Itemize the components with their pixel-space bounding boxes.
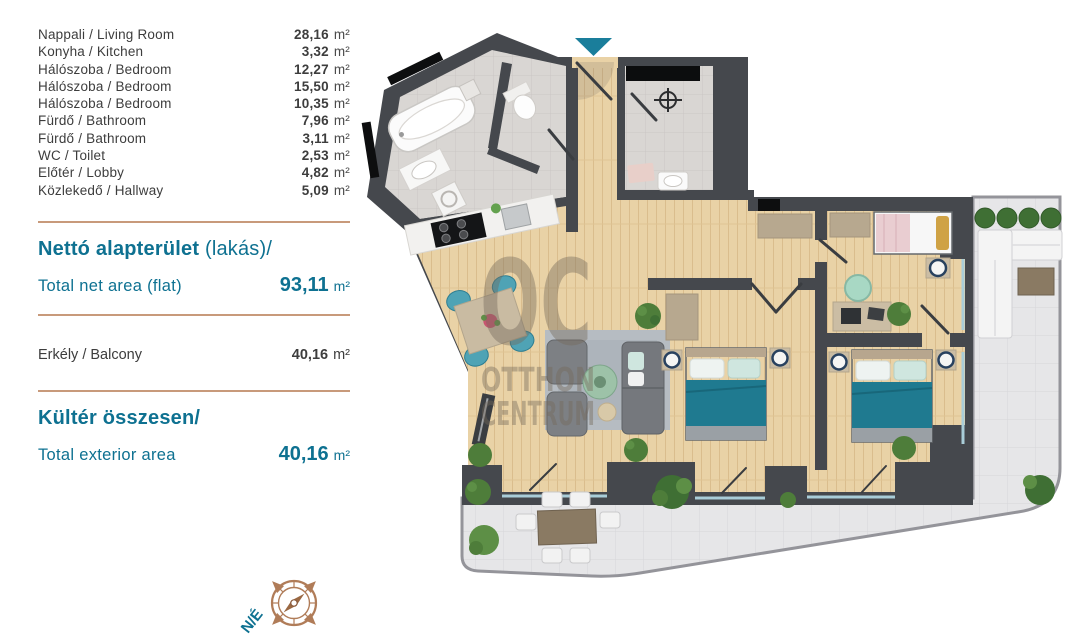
svg-text:CENTRUM: CENTRUM [481,394,595,433]
side-table [598,403,616,421]
single-bed [874,212,952,254]
watermark: OC OTTHON CENTRUM [480,234,595,433]
compass-north-label: N/É [238,606,267,636]
floorplan-sheet: { "left_panel": { "rooms": [ {"label": "… [0,0,1075,639]
plant [892,436,916,460]
wardrobe [830,213,870,237]
desk-chair [845,275,871,301]
hall-wardrobe [758,214,812,238]
compass-icon: N/É [234,568,364,639]
plant [468,443,492,467]
wardrobe [666,294,698,340]
compass-needle [281,591,306,615]
floorplan-drawing: OC OTTHON CENTRUM [0,0,1075,639]
desk [833,302,891,331]
entrance-arrow-icon [575,38,612,56]
svg-text:OC: OC [480,234,592,372]
ottoman [1018,268,1054,295]
